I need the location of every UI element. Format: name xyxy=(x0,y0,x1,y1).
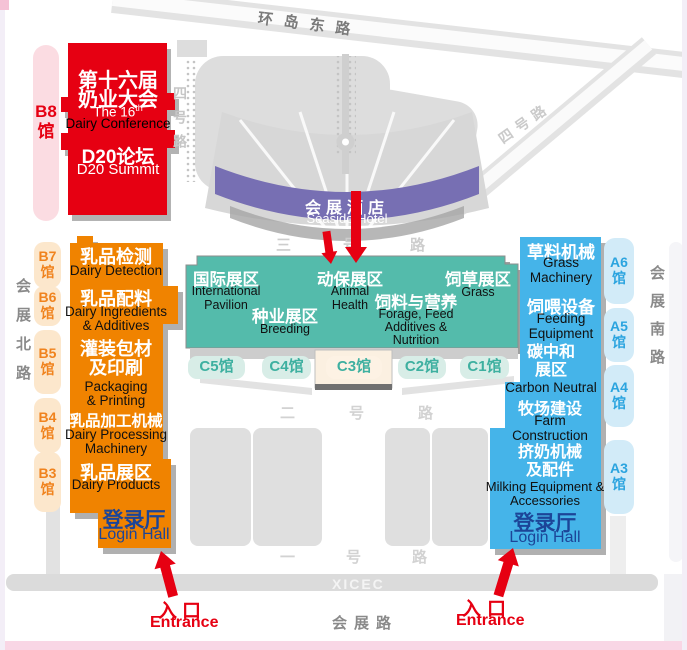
hall-pill-b5: B5 馆 xyxy=(34,330,61,394)
expo-floorplan-map: 环岛东路 四号路 四号路 三号路 二号路 一号路 会展北路 会展南路 会展路 X… xyxy=(0,0,687,650)
zone-grass-en: Grass xyxy=(438,285,518,299)
west-login-hall-en: Login Hall xyxy=(96,526,172,544)
conference-title-en2: Dairy Conference xyxy=(65,116,171,131)
east-login-hall-en: Login Hall xyxy=(505,529,585,547)
right-trim xyxy=(682,0,687,650)
hall-pill-b6: B6 馆 xyxy=(34,286,61,326)
gray-hall xyxy=(253,428,322,546)
small-building xyxy=(177,40,207,57)
corner-pink-square xyxy=(0,0,9,10)
west-dairy-products-en: Dairy Products xyxy=(64,477,168,492)
hall-pill-a5: A5 馆 xyxy=(604,308,634,362)
road-label-no2: 二号路 xyxy=(280,402,487,423)
hall-pill-c4: C4馆 xyxy=(262,356,311,379)
west-packaging-zh: 灌装包材 及印刷 xyxy=(68,340,164,378)
road-label-north: 会展北路 xyxy=(12,278,33,394)
hall-pill-c3: C3馆 xyxy=(326,356,382,379)
c3-lobby-base xyxy=(315,384,392,390)
hall-pill-a4: A4 馆 xyxy=(604,365,634,427)
zone-forage-en: Forage, Feed Additives & Nutrition xyxy=(370,308,462,347)
east-carbon-neutral-zh: 碳中和 展区 xyxy=(500,344,602,379)
west-access-road xyxy=(46,505,60,585)
entrance-right-en: Entrance xyxy=(456,612,524,630)
hall-pill-a3: A3 馆 xyxy=(604,440,634,514)
hall-pill-c5: C5馆 xyxy=(188,356,245,379)
xicec-label: XICEC xyxy=(332,576,385,592)
hotel-name-en: Seaside Hotel xyxy=(277,211,417,226)
east-access-road xyxy=(610,516,626,576)
west-processing-en: Dairy Processing Machinery xyxy=(64,428,168,456)
bottom-trim xyxy=(0,641,687,650)
entrance-left-en: Entrance xyxy=(150,614,218,632)
hall-label-b8: B8 馆 xyxy=(32,102,60,142)
east-farm-construction-en: Farm Construction xyxy=(495,414,605,443)
hall-pill-c2: C2馆 xyxy=(398,356,446,379)
gray-hall xyxy=(385,428,430,546)
hall-pill-b3: B3 馆 xyxy=(34,452,61,512)
plaza-axis xyxy=(342,54,349,174)
west-dairy-detection-en: Dairy Detection xyxy=(68,263,164,278)
hall-pill-b4: B4 馆 xyxy=(34,398,61,453)
west-ingredients-en: Dairy Ingredients & Additives xyxy=(64,305,168,333)
east-feeding-en: Feeding Equipment xyxy=(520,312,602,341)
west-packaging-en: Packaging & Printing xyxy=(68,380,164,408)
zone-breeding-en: Breeding xyxy=(243,322,327,336)
road-label-no3: 三号路 xyxy=(276,234,477,255)
east-carbon-neutral-en: Carbon Neutral xyxy=(498,380,604,395)
road-label-exhibition: 会展路 xyxy=(332,612,398,633)
east-strip xyxy=(669,242,683,562)
left-trim xyxy=(0,0,5,650)
road-label-no4-left: 四号路 xyxy=(170,86,190,158)
gray-hall xyxy=(432,428,488,546)
d20-summit-en: D20 Summit xyxy=(68,161,168,178)
road-label-no1: 一号路 xyxy=(280,546,478,567)
road-label-south: 会展南路 xyxy=(646,265,667,377)
east-milking-en: Milking Equipment & Accessories xyxy=(483,480,607,507)
gray-hall xyxy=(190,428,251,546)
hall-pill-a6: A6 馆 xyxy=(604,238,634,304)
hall-pill-b7: B7 馆 xyxy=(34,242,61,288)
east-milking-zh: 挤奶机械 及配件 xyxy=(495,444,605,479)
east-grass-machinery-en: Grass Machinery xyxy=(520,256,602,285)
